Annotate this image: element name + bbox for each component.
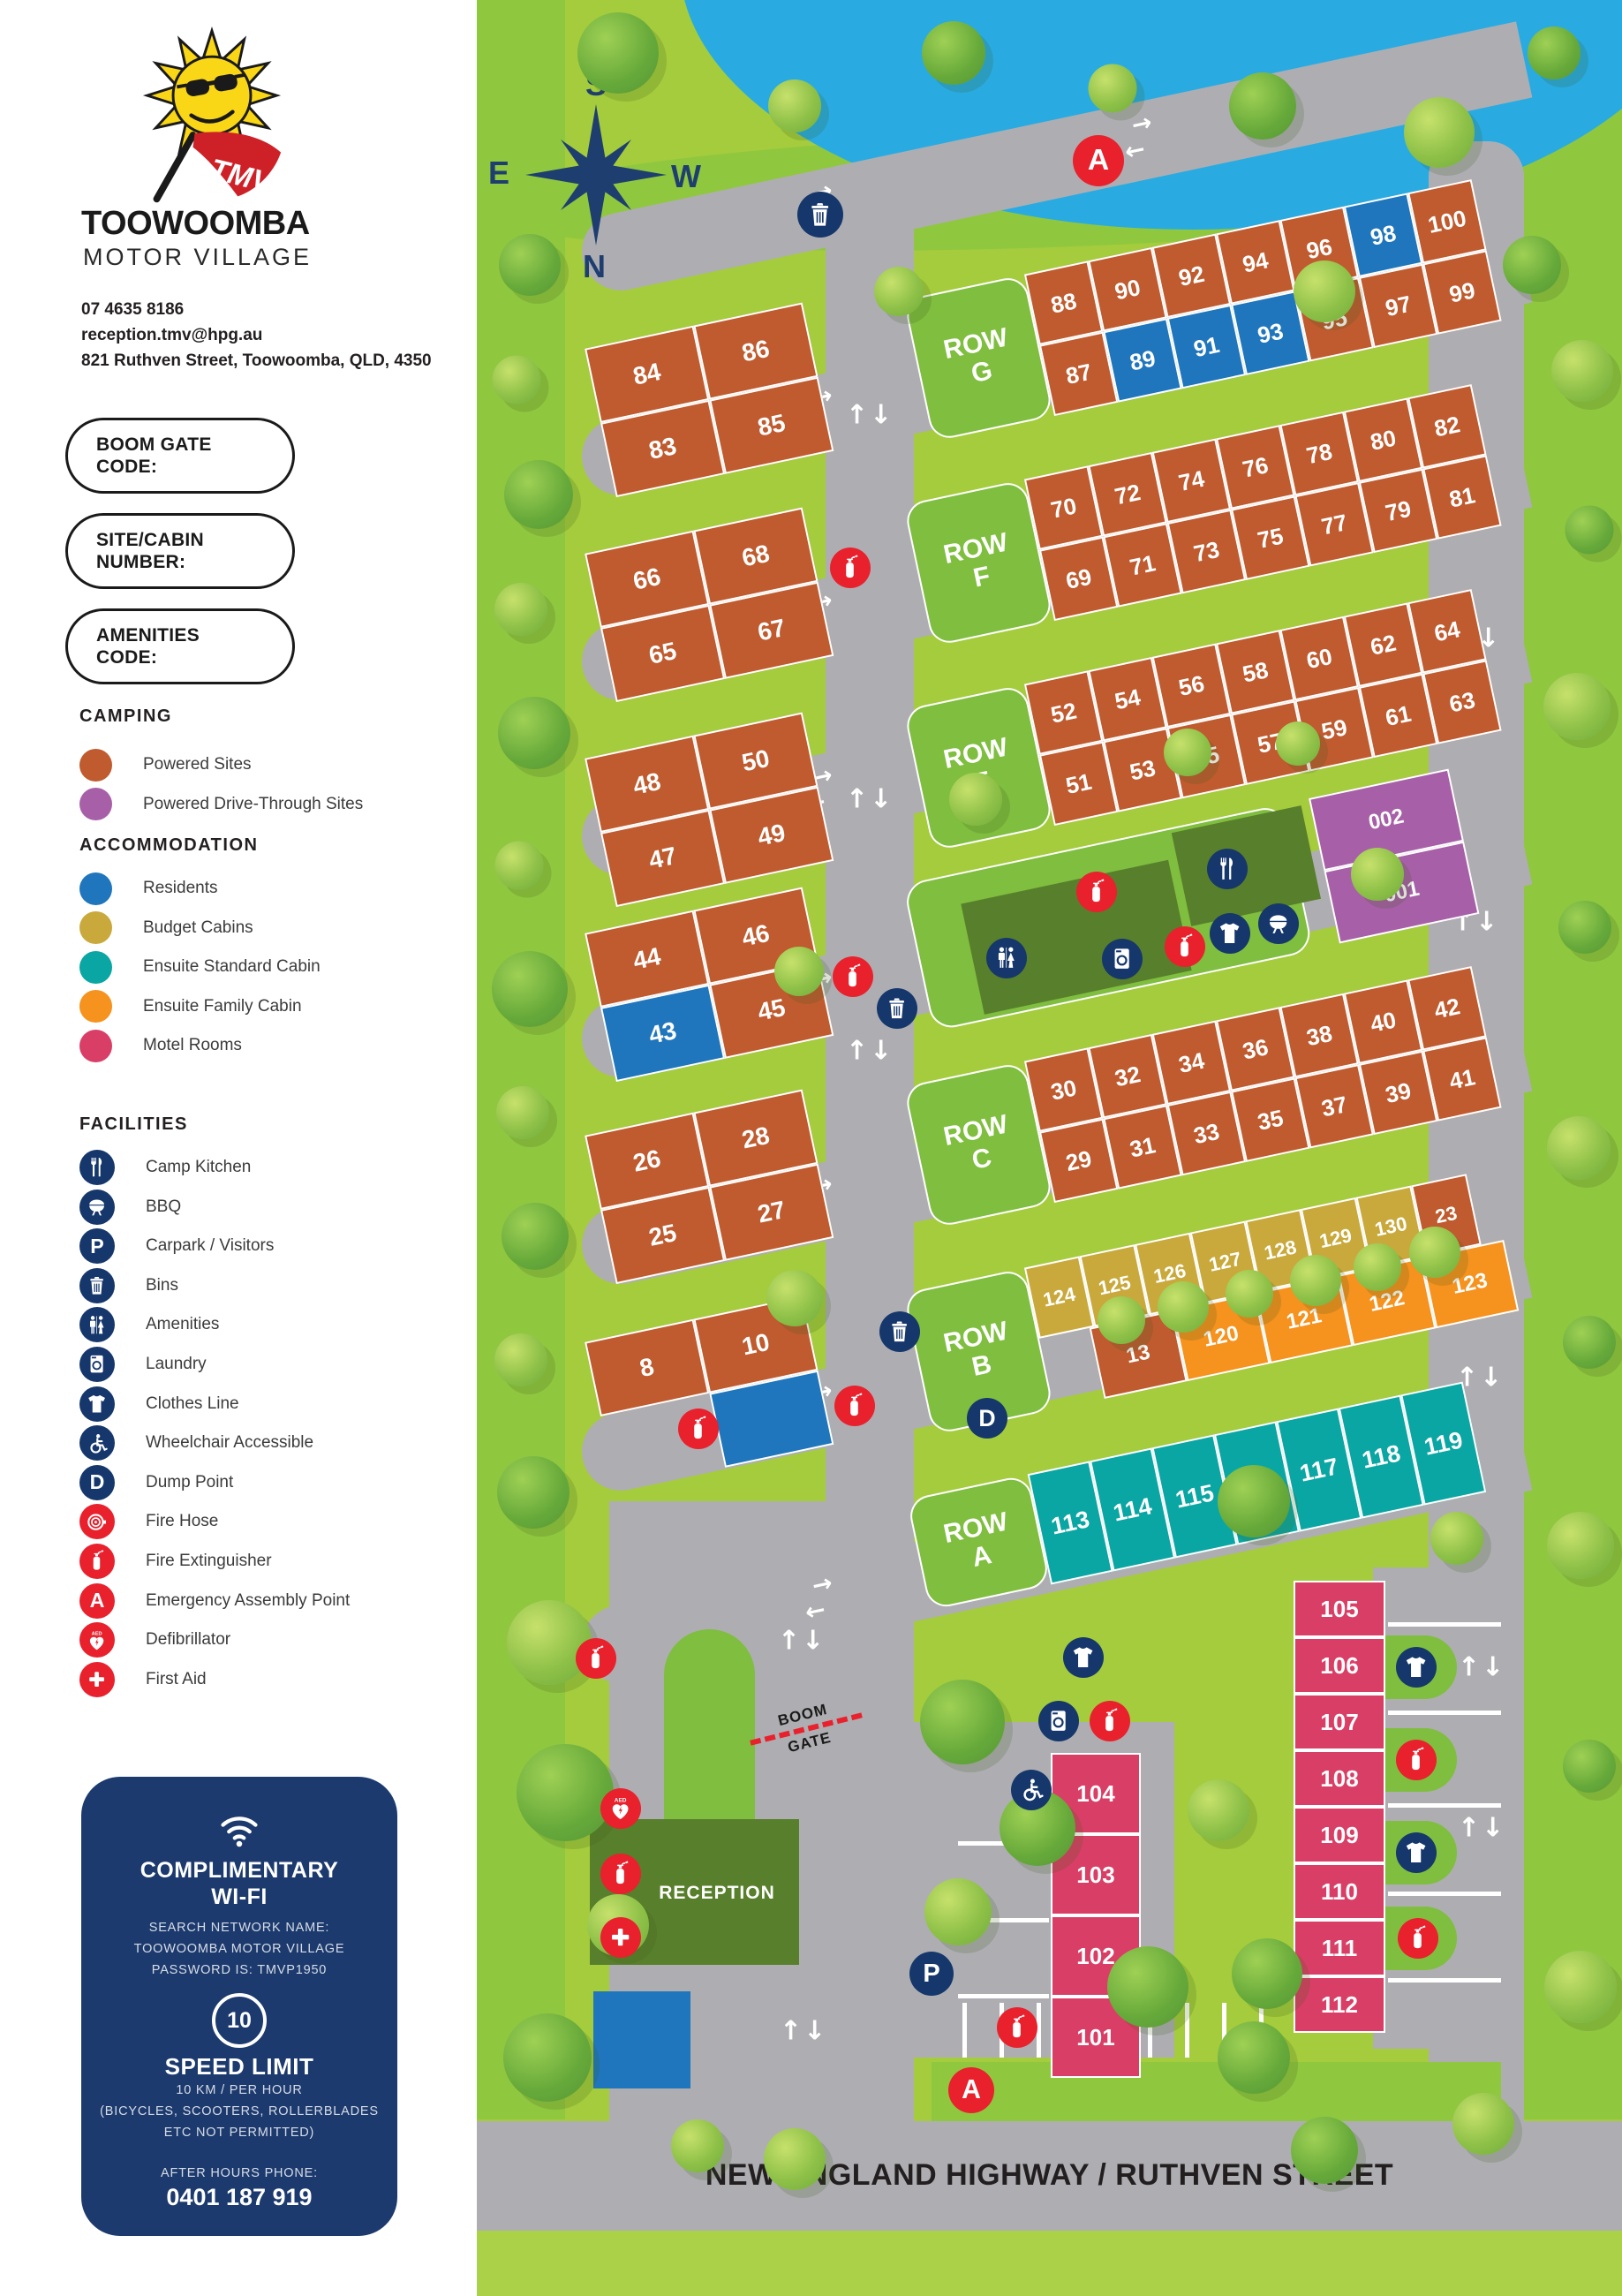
tree <box>671 2119 724 2172</box>
tree <box>1551 340 1613 402</box>
color-swatch <box>79 990 112 1023</box>
legend-facilities-item: Fire Extinguisher <box>79 1542 272 1581</box>
legend-camping-heading: CAMPING <box>79 706 172 727</box>
laundry-icon <box>79 1347 115 1382</box>
legend-camping-label: Powered Drive-Through Sites <box>143 795 363 814</box>
legend-accommodation-label: Budget Cabins <box>143 918 253 938</box>
fire-extinguisher-icon <box>600 1854 641 1894</box>
wifi-title1: COMPLIMENTARY <box>81 1857 397 1884</box>
speed-note2: ETC NOT PERMITTED) <box>81 2122 397 2143</box>
speed-note1: (BICYCLES, SCOOTERS, ROLLERBLADES <box>81 2101 397 2122</box>
tmv-logo: TMV <box>106 26 318 212</box>
tree <box>503 2013 592 2102</box>
parking-line <box>1388 1622 1501 1627</box>
emergency-assembly-icon: A <box>1073 135 1124 186</box>
tree <box>1218 2021 1290 2094</box>
parking-line <box>962 2003 967 2058</box>
two-way-arrows-vertical: ↑↓ <box>846 400 894 431</box>
legend-facilities-label: Fire Hose <box>146 1512 218 1531</box>
speed-limit-title: SPEED LIMIT <box>81 2053 397 2080</box>
site-111: 111 <box>1294 1920 1385 1976</box>
color-swatch <box>79 1030 112 1062</box>
legend-facilities-label: First Aid <box>146 1670 207 1689</box>
tree <box>497 1456 570 1529</box>
wheelchair-icon <box>1011 1770 1052 1810</box>
bbq-icon <box>79 1190 115 1225</box>
two-way-arrows-vertical: ↑↓ <box>778 1626 826 1657</box>
site-112: 112 <box>1294 1976 1385 2033</box>
fire-extinguisher-icon <box>1165 926 1205 967</box>
color-swatch <box>79 788 112 820</box>
grass-strip-right <box>1523 0 1622 2119</box>
fire-extinguisher-icon <box>834 1386 875 1426</box>
bins-icon <box>79 1268 115 1303</box>
legend-accommodation-label: Ensuite Standard Cabin <box>143 957 321 977</box>
first-aid-icon <box>600 1917 641 1958</box>
legend-facilities-heading: FACILITIES <box>79 1114 188 1135</box>
tree <box>1232 1938 1302 2009</box>
tree <box>498 697 570 769</box>
tree <box>1107 1946 1188 2028</box>
amenities-icon <box>986 938 1027 978</box>
legend-facilities-label: Wheelchair Accessible <box>146 1433 313 1453</box>
bins-icon <box>797 192 843 238</box>
tree <box>1565 506 1614 555</box>
legend-facilities-item: Bins <box>79 1266 178 1305</box>
page: S E W N RECEPTION BOOM GATE NEW ENGLAND … <box>0 0 1622 2296</box>
tree <box>1544 1951 1617 2023</box>
contact-phone: 07 4635 8186 <box>81 297 432 322</box>
legend-facilities-label: BBQ <box>146 1197 181 1217</box>
legend-accommodation-label: Motel Rooms <box>143 1036 242 1055</box>
tree <box>1558 901 1611 954</box>
bbq-icon <box>1258 903 1299 944</box>
code-box-3: AMENITIESCODE: <box>65 608 295 684</box>
tree <box>1158 1281 1209 1333</box>
fire-hose-icon <box>79 1504 115 1539</box>
wifi-panel: COMPLIMENTARY WI-FI SEARCH NETWORK NAME:… <box>81 1777 397 2236</box>
wifi-title2: WI-FI <box>81 1884 397 1910</box>
site-109: 109 <box>1294 1807 1385 1863</box>
legend-accommodation-item: Budget Cabins <box>79 909 253 948</box>
legend-facilities-item: Fire Hose <box>79 1502 218 1541</box>
wheelchair-icon <box>79 1425 115 1461</box>
laundry-icon <box>1038 1701 1079 1741</box>
legend-facilities-label: Bins <box>146 1276 178 1295</box>
legend-camping-label: Powered Sites <box>143 755 252 774</box>
parking-line <box>958 1994 1049 1998</box>
tree <box>1409 1227 1460 1278</box>
legend-facilities-label: Fire Extinguisher <box>146 1552 272 1571</box>
tree <box>494 1333 547 1386</box>
after-hours-phone: 0401 187 919 <box>81 2184 397 2211</box>
two-way-arrows-vertical: ↑↓ <box>846 784 894 815</box>
sidebar: TMV TOOWOOMBA MOTOR VILLAGE 07 4635 8186… <box>0 0 477 2296</box>
tree <box>920 1680 1005 1764</box>
reception-label: RECEPTION <box>637 1883 796 1904</box>
parking-line <box>1388 1711 1501 1715</box>
legend-facilities-item: Laundry <box>79 1345 207 1384</box>
wifi-password: PASSWORD IS: TMVP1950 <box>81 1960 397 1981</box>
tree <box>1563 1316 1616 1369</box>
compass-north: N <box>583 248 606 285</box>
tree <box>1354 1243 1401 1291</box>
contact-address: 821 Ruthven Street, Toowoomba, QLD, 4350 <box>81 348 432 374</box>
tree <box>1089 64 1137 113</box>
legend-camping-item: Powered Sites <box>79 745 252 784</box>
clothes-line-icon <box>1210 913 1250 954</box>
tree <box>492 951 568 1027</box>
compass-rose: S E W N <box>525 104 667 245</box>
svg-text:AED: AED <box>92 1631 102 1636</box>
tree <box>1404 97 1475 168</box>
legend-accommodation-item: Motel Rooms <box>79 1026 242 1065</box>
legend-accommodation-item: Ensuite Standard Cabin <box>79 948 321 986</box>
legend-facilities-item: PCarpark / Visitors <box>79 1227 274 1265</box>
legend-facilities-item: Camp Kitchen <box>79 1148 251 1187</box>
parking-line <box>1388 1803 1501 1808</box>
tree <box>922 21 985 85</box>
wifi-network-label: SEARCH NETWORK NAME: <box>81 1917 397 1938</box>
tree <box>494 583 547 636</box>
fire-extinguisher-icon <box>678 1409 719 1449</box>
parking-line <box>1388 1978 1501 1983</box>
tree <box>774 947 824 996</box>
clothes-line-icon <box>1396 1647 1437 1688</box>
tree <box>504 460 573 529</box>
legend-facilities-label: Emergency Assembly Point <box>146 1591 350 1611</box>
tree <box>1098 1296 1145 1344</box>
two-way-arrows: →← <box>1129 110 1159 162</box>
tree <box>1547 1116 1611 1180</box>
tree <box>764 2128 826 2190</box>
tree <box>495 842 544 890</box>
laundry-icon <box>1102 939 1143 979</box>
camp-kitchen-icon <box>1207 849 1248 889</box>
contact-email: reception.tmv@hpg.au <box>81 322 432 348</box>
legend-facilities-item: BBQ <box>79 1188 181 1227</box>
amenities-icon <box>79 1307 115 1342</box>
dump-point-icon: D <box>79 1465 115 1500</box>
legend-facilities-item: DDump Point <box>79 1463 233 1502</box>
two-way-arrows-vertical: ↑↓ <box>1458 1652 1505 1683</box>
tree <box>1226 1270 1273 1318</box>
grass-strip-bottom <box>477 2231 1622 2296</box>
carpark-icon: P <box>79 1228 115 1264</box>
fire-extinguisher-icon <box>1396 1740 1437 1780</box>
legend-accommodation-item: Residents <box>79 869 218 908</box>
tree <box>496 1086 549 1139</box>
fire-extinguisher-icon <box>997 2007 1037 2048</box>
tree <box>502 1203 569 1270</box>
contact-block: 07 4635 8186 reception.tmv@hpg.au 821 Ru… <box>81 297 432 374</box>
emergency-assembly-icon: A <box>948 2067 994 2113</box>
parking-line <box>1388 1892 1501 1896</box>
color-swatch <box>79 872 112 905</box>
legend-camping-item: Powered Drive-Through Sites <box>79 785 363 824</box>
highway-label: NEW ENGLAND HIGHWAY / RUTHVEN STREET <box>477 2158 1622 2193</box>
svg-text:AED: AED <box>615 1798 627 1804</box>
legend-facilities-label: Carpark / Visitors <box>146 1236 274 1256</box>
tree <box>1294 261 1355 322</box>
tree <box>1503 236 1561 294</box>
brand-name: TOOWOOMBA <box>81 205 310 243</box>
motel-column-right: 105106107108109110111112 <box>1294 1581 1385 2033</box>
legend-accommodation-item: Ensuite Family Cabin <box>79 987 302 1026</box>
fire-extinguisher-icon <box>1090 1701 1130 1741</box>
tree <box>768 79 821 132</box>
fire-extinguisher-icon <box>576 1638 616 1679</box>
tree <box>507 1600 592 1685</box>
tree <box>1291 2117 1358 2184</box>
defibrillator-icon: AED <box>600 1788 641 1829</box>
legend-facilities-label: Dump Point <box>146 1473 233 1492</box>
two-way-arrows-vertical: ↑↓ <box>846 1036 894 1067</box>
tree <box>1543 673 1611 740</box>
legend-accommodation-heading: ACCOMMODATION <box>79 835 258 856</box>
legend-facilities-item: Wheelchair Accessible <box>79 1424 313 1462</box>
color-swatch <box>79 749 112 782</box>
tree <box>1290 1255 1341 1306</box>
wifi-icon <box>81 1777 397 1857</box>
legend-facilities-label: Laundry <box>146 1355 207 1374</box>
legend-accommodation-label: Residents <box>143 879 218 898</box>
fire-extinguisher-icon <box>1076 872 1117 912</box>
code-box-1: BOOM GATECODE: <box>65 418 295 494</box>
tree <box>874 267 924 316</box>
tree <box>1430 1512 1483 1565</box>
tree <box>493 356 541 404</box>
parking-line <box>1185 2003 1189 2058</box>
tree <box>1528 26 1581 79</box>
carpark-icon: P <box>909 1952 954 1996</box>
emergency-assembly-icon: A <box>79 1583 115 1619</box>
clothes-line-icon <box>1396 1832 1437 1873</box>
tree <box>1563 1740 1616 1793</box>
two-way-arrows-vertical: ↑↓ <box>780 2016 827 2047</box>
camp-kitchen-icon <box>79 1150 115 1185</box>
two-way-arrows: →← <box>810 1571 840 1623</box>
site-106: 106 <box>1294 1637 1385 1694</box>
bins-icon <box>879 1311 920 1352</box>
fire-extinguisher-icon <box>830 548 871 588</box>
grass-island-bottom <box>932 2062 1501 2121</box>
speed-limit-icon: 10 <box>81 1993 397 2048</box>
legend-facilities-item: Clothes Line <box>79 1385 239 1424</box>
legend-facilities-item: AEmergency Assembly Point <box>79 1582 350 1620</box>
site-108: 108 <box>1294 1750 1385 1807</box>
tree <box>577 12 659 94</box>
tree <box>499 234 561 296</box>
tree <box>1229 72 1296 140</box>
speed-limit-sub: 10 KM / PER HOUR <box>81 2080 397 2101</box>
compass-west: W <box>671 158 701 195</box>
fire-extinguisher-icon <box>79 1544 115 1579</box>
bins-icon <box>877 988 917 1029</box>
legend-facilities-item: AEDDefibrillator <box>79 1620 230 1659</box>
legend-facilities-label: Clothes Line <box>146 1394 239 1414</box>
tree <box>1218 1465 1290 1537</box>
two-way-arrows-vertical: ↑↓ <box>1458 1813 1505 1844</box>
after-hours-label: AFTER HOURS PHONE: <box>81 2163 397 2184</box>
legend-facilities-item: First Aid <box>79 1660 207 1699</box>
code-box-2: SITE/CABINNUMBER: <box>65 513 295 589</box>
wifi-network-name: TOOWOOMBA MOTOR VILLAGE <box>81 1938 397 1960</box>
legend-facilities-label: Camp Kitchen <box>146 1158 251 1177</box>
color-swatch <box>79 951 112 984</box>
defibrillator-icon: AED <box>79 1622 115 1658</box>
site-105: 105 <box>1294 1581 1385 1637</box>
tree <box>766 1270 823 1326</box>
tree <box>1188 1779 1249 1841</box>
clothes-line-icon <box>79 1386 115 1422</box>
tree <box>1164 729 1211 776</box>
tree <box>517 1744 614 1841</box>
legend-facilities-label: Defibrillator <box>146 1630 230 1650</box>
tree <box>924 1878 992 1945</box>
fire-extinguisher-icon <box>833 956 873 997</box>
dump-point-icon: D <box>967 1398 1007 1439</box>
site-107: 107 <box>1294 1694 1385 1750</box>
clothes-line-icon <box>1063 1637 1104 1678</box>
first-aid-icon <box>79 1662 115 1697</box>
legend-facilities-item: Amenities <box>79 1305 219 1344</box>
compass-east: E <box>488 155 509 192</box>
brand-subname: MOTOR VILLAGE <box>83 244 312 271</box>
residents-site-reception <box>593 1991 690 2088</box>
tree <box>949 773 1002 826</box>
site-110: 110 <box>1294 1863 1385 1920</box>
legend-accommodation-label: Ensuite Family Cabin <box>143 997 302 1016</box>
tree <box>1547 1512 1614 1579</box>
legend-facilities-label: Amenities <box>146 1315 219 1334</box>
color-swatch <box>79 911 112 944</box>
fire-extinguisher-icon <box>1398 1918 1438 1959</box>
tree <box>1276 721 1320 766</box>
tree <box>1452 2093 1514 2155</box>
tree <box>1351 848 1404 901</box>
